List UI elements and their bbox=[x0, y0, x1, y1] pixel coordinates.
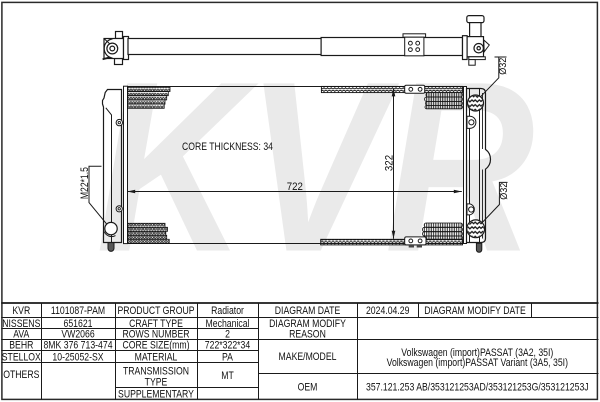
svg-text:BEHR: BEHR bbox=[9, 340, 33, 352]
svg-text:REASON: REASON bbox=[289, 329, 326, 341]
svg-text:PA: PA bbox=[222, 352, 233, 364]
svg-text:CORE THICKNESS: 34: CORE THICKNESS: 34 bbox=[182, 141, 273, 153]
svg-text:8MK 376 713-474: 8MK 376 713-474 bbox=[43, 340, 112, 352]
svg-text:Volkswagen (import)PASSAT Vari: Volkswagen (import)PASSAT Variant (3A5, … bbox=[387, 357, 568, 369]
svg-text:DIAGRAM DATE: DIAGRAM DATE bbox=[275, 305, 341, 317]
svg-text:OTHERS: OTHERS bbox=[3, 369, 40, 381]
svg-text:Ø32: Ø32 bbox=[498, 58, 510, 75]
svg-text:OEM: OEM bbox=[298, 382, 318, 394]
svg-text:DIAGRAM MODIFY DATE: DIAGRAM MODIFY DATE bbox=[424, 305, 526, 317]
svg-text:1101087-PAM: 1101087-PAM bbox=[51, 305, 105, 317]
svg-text:10-25052-SX: 10-25052-SX bbox=[52, 352, 104, 364]
svg-text:CORE SIZE(mm): CORE SIZE(mm) bbox=[122, 340, 189, 352]
svg-text:322: 322 bbox=[384, 155, 396, 171]
svg-text:MT: MT bbox=[221, 370, 234, 382]
svg-text:STELLOX: STELLOX bbox=[2, 352, 41, 364]
svg-text:KVR: KVR bbox=[12, 305, 30, 317]
svg-text:SUPPLEMENTARY: SUPPLEMENTARY bbox=[118, 389, 194, 401]
svg-text:TYPE: TYPE bbox=[145, 376, 168, 388]
svg-text:2024.04.29: 2024.04.29 bbox=[366, 305, 410, 317]
svg-text:722: 722 bbox=[287, 181, 303, 193]
svg-text:MATERIAL: MATERIAL bbox=[135, 352, 178, 364]
svg-text:M22*1.5: M22*1.5 bbox=[79, 167, 91, 199]
svg-text:PRODUCT GROUP: PRODUCT GROUP bbox=[117, 305, 194, 317]
svg-text:MAKE/MODEL: MAKE/MODEL bbox=[279, 351, 337, 363]
svg-text:722*322*34: 722*322*34 bbox=[205, 340, 251, 352]
svg-text:357.121.253 AB/353121253AD/353: 357.121.253 AB/353121253AD/353121253G/35… bbox=[366, 382, 589, 394]
svg-text:Radiator: Radiator bbox=[211, 305, 244, 317]
svg-text:Ø32: Ø32 bbox=[498, 183, 510, 200]
svg-text:KVR: KVR bbox=[96, 30, 535, 302]
